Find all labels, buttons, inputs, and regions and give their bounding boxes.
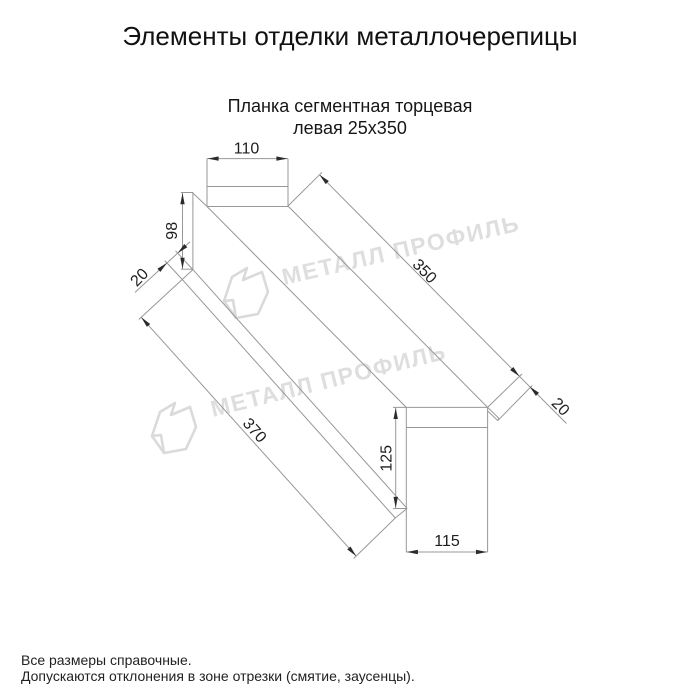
svg-text:115: 115	[434, 533, 460, 550]
svg-text:20: 20	[548, 395, 573, 420]
svg-text:МЕТАЛЛ ПРОФИЛЬ: МЕТАЛЛ ПРОФИЛЬ	[208, 338, 449, 422]
svg-text:110: 110	[234, 141, 260, 158]
svg-text:20: 20	[128, 265, 153, 290]
svg-text:350: 350	[409, 256, 440, 287]
svg-text:125: 125	[378, 445, 395, 472]
svg-text:370: 370	[239, 415, 270, 446]
svg-text:МЕТАЛЛ ПРОФИЛЬ: МЕТАЛЛ ПРОФИЛЬ	[279, 210, 522, 290]
svg-text:98: 98	[164, 222, 181, 240]
